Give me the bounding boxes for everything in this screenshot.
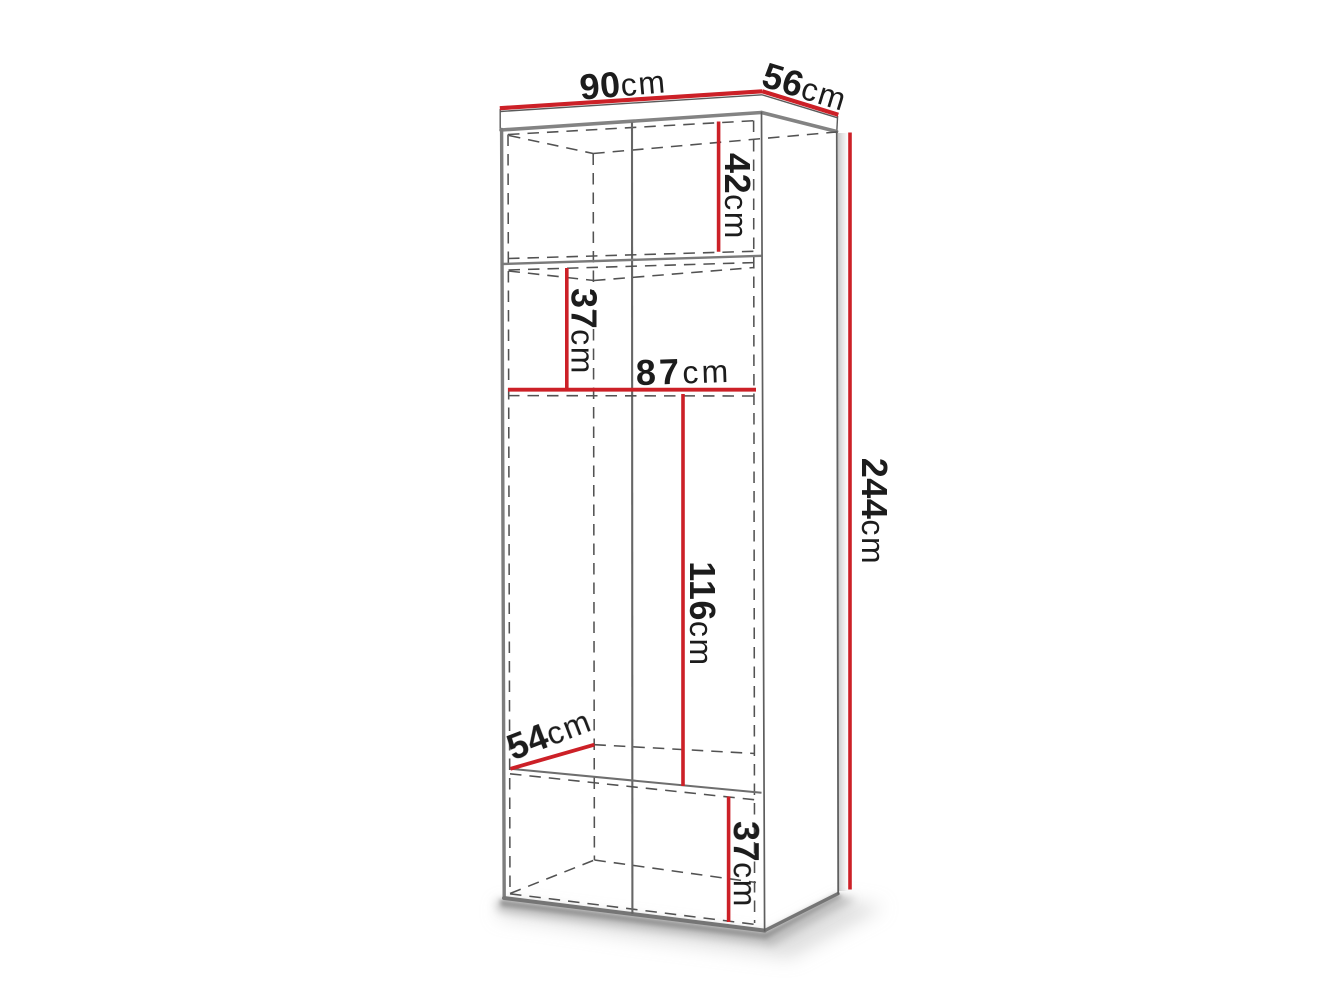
svg-text:116cm: 116cm [682,561,723,666]
svg-text:87cm: 87cm [635,349,732,393]
svg-text:42cm: 42cm [717,153,758,240]
svg-text:37cm: 37cm [726,821,767,908]
svg-text:244cm: 244cm [854,458,895,565]
svg-text:37cm: 37cm [564,288,605,375]
